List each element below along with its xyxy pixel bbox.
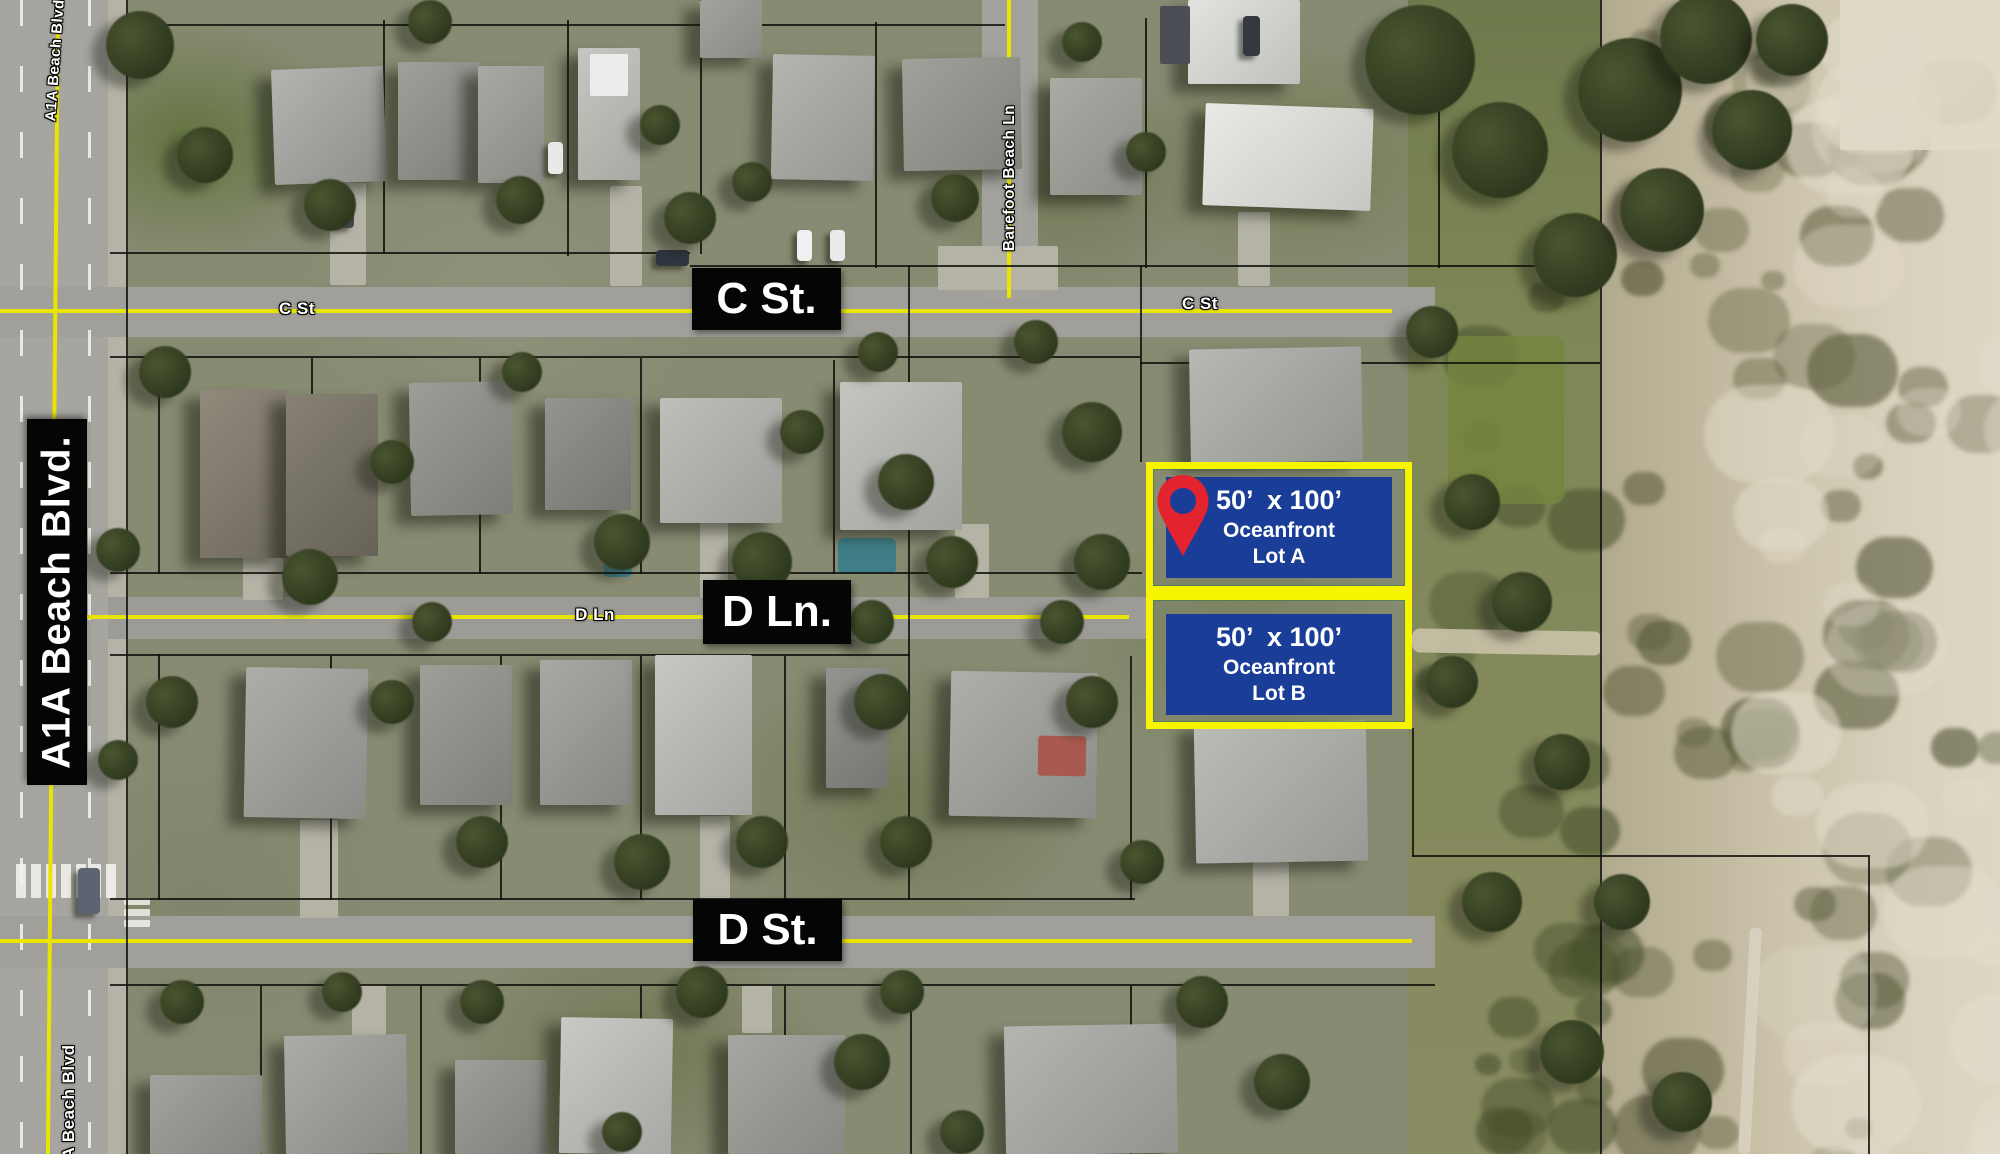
tree: [1534, 734, 1590, 790]
lot-b-name: Lot B: [1166, 682, 1392, 706]
scrub-patch: [1708, 288, 1789, 353]
tree: [1756, 4, 1828, 76]
tree: [931, 174, 979, 222]
tree: [602, 1112, 642, 1152]
parcel-line: [110, 356, 1140, 358]
sand-corner: [1840, 0, 2000, 150]
tree: [282, 549, 338, 605]
tree: [177, 127, 233, 183]
parcel-line: [567, 20, 569, 256]
parcel-line: [110, 252, 690, 254]
driveway: [300, 820, 338, 918]
house-roof: [655, 655, 752, 815]
tree: [1074, 534, 1130, 590]
sand-patch: [1826, 173, 1884, 216]
tree: [676, 966, 728, 1018]
tree: [1492, 572, 1552, 632]
scrub-patch: [1487, 1110, 1548, 1154]
house-roof: [545, 398, 631, 510]
parcel-line: [110, 984, 1435, 986]
house-roof: [271, 66, 387, 185]
house-roof: [540, 660, 632, 805]
tree: [370, 680, 414, 724]
parcel-line: [1412, 728, 1414, 857]
tree: [1594, 874, 1650, 930]
tree: [1066, 676, 1118, 728]
tree: [1426, 656, 1478, 708]
tree: [1014, 320, 1058, 364]
tree: [640, 105, 680, 145]
crosswalk-bar: [16, 864, 26, 898]
lane-dashes: [88, 0, 91, 1154]
lot-b-size: 50’ x 100’: [1166, 622, 1392, 653]
house-roof: [286, 394, 378, 556]
road-label-c-st-right: C St: [1155, 294, 1245, 314]
scrub-patch: [1603, 666, 1665, 715]
car: [656, 250, 689, 266]
sand-patch: [1793, 225, 1905, 309]
tree: [1540, 1020, 1604, 1084]
sand-patch: [1704, 385, 1835, 483]
car: [797, 230, 812, 261]
tree: [106, 11, 174, 79]
pool: [838, 538, 896, 574]
tree: [1533, 213, 1617, 297]
tree: [408, 0, 452, 44]
sand-path: [1412, 628, 1602, 655]
tree: [664, 192, 716, 244]
car: [1243, 16, 1260, 56]
car: [78, 868, 100, 914]
road-label-c-st-left: C St: [252, 299, 342, 319]
house-roof: [455, 1060, 547, 1154]
tree: [1176, 976, 1228, 1028]
tree: [1712, 90, 1792, 170]
scrub-patch: [1548, 1099, 1617, 1154]
tree: [1620, 168, 1704, 252]
scrub-patch: [1488, 997, 1539, 1038]
sand-patch: [1825, 604, 1947, 695]
tree: [780, 410, 824, 454]
tree: [880, 970, 924, 1014]
roof-section: [1160, 6, 1190, 64]
road-label-d-ln: D Ln: [550, 605, 640, 625]
driveway: [1253, 862, 1289, 916]
scrub-patch: [1693, 940, 1732, 971]
house-roof: [1202, 103, 1373, 211]
tree: [1126, 132, 1166, 172]
sand-patch: [1731, 692, 1841, 774]
house-roof: [700, 0, 762, 58]
scrub-patch: [1475, 1054, 1501, 1075]
scrub-patch: [1623, 472, 1665, 505]
parcel-line: [1868, 857, 1870, 1154]
tree: [732, 162, 772, 202]
house-roof: [1194, 721, 1368, 864]
scrub-patch: [1621, 261, 1665, 296]
road-a1a-shoulder: [108, 0, 128, 1154]
tree: [878, 454, 934, 510]
parcel-line: [110, 572, 1142, 574]
parcel-line: [1140, 266, 1142, 462]
lot-a-sign[interactable]: 50’ x 100’ Oceanfront Lot A: [1166, 477, 1392, 578]
tree: [1406, 306, 1458, 358]
road-label-a1a-bottom: A Beach Blvd: [59, 1041, 79, 1154]
tree: [1254, 1054, 1310, 1110]
house-roof: [398, 62, 480, 180]
scrub-patch: [1978, 732, 2000, 764]
parcel-line: [833, 360, 835, 574]
scrub-patch: [1627, 614, 1671, 650]
sand-patch: [1759, 528, 1806, 563]
tree: [858, 332, 898, 372]
tree: [146, 676, 198, 728]
house-roof: [409, 381, 513, 516]
street-label-d-st: D St.: [693, 899, 842, 961]
tree: [940, 1110, 984, 1154]
driveway: [742, 985, 772, 1033]
street-label-d-ln: D Ln.: [703, 580, 851, 644]
scrub-patch: [1674, 727, 1738, 778]
lot-a-overlay[interactable]: 50’ x 100’ Oceanfront Lot A: [1146, 462, 1412, 593]
tree: [96, 528, 140, 572]
tree: [594, 514, 650, 570]
parcel-line: [1412, 855, 1870, 857]
house-roof: [284, 1034, 408, 1154]
parcel-line: [420, 986, 422, 1154]
scrub-patch: [1690, 253, 1720, 277]
tree: [880, 816, 932, 868]
lot-b-sign[interactable]: 50’ x 100’ Oceanfront Lot B: [1166, 614, 1392, 715]
tree: [850, 600, 894, 644]
parcel-line: [1600, 0, 1602, 1154]
tree: [456, 816, 508, 868]
house-roof: [200, 390, 288, 558]
location-pin-icon[interactable]: [1154, 473, 1212, 559]
tree: [412, 602, 452, 642]
street-label-a1a-beach-blvd: A1A Beach Blvd.: [27, 419, 87, 785]
house-roof: [1004, 1024, 1178, 1154]
house-roof: [478, 66, 544, 183]
house-roof: [771, 54, 875, 181]
sand-patch: [1897, 388, 1961, 436]
lot-b-type: Oceanfront: [1166, 656, 1392, 680]
tree: [460, 980, 504, 1024]
house-roof: [150, 1075, 262, 1154]
scrub-patch: [1499, 785, 1564, 837]
map-decoration: [0, 0, 2000, 1154]
car: [548, 142, 563, 174]
driveway: [1238, 212, 1270, 286]
crosswalk-bar: [31, 864, 41, 898]
house-roof: [420, 665, 512, 805]
tree: [322, 972, 362, 1012]
tree: [1462, 872, 1522, 932]
house-deck: [1038, 736, 1087, 777]
scrub-patch: [1716, 622, 1803, 692]
parcel-line: [110, 898, 1135, 900]
parcel-line: [875, 22, 877, 268]
tree: [926, 536, 978, 588]
tree: [736, 816, 788, 868]
sand-patch: [1791, 1055, 1920, 1152]
tree: [1444, 474, 1500, 530]
driveway: [610, 186, 642, 286]
scrub-patch: [1560, 807, 1620, 855]
tree: [370, 440, 414, 484]
driveway: [938, 246, 1058, 290]
tree: [854, 674, 910, 730]
rooftop-deck: [590, 54, 628, 96]
tree: [1040, 600, 1084, 644]
lane-dashes: [20, 0, 23, 1154]
tree: [1452, 102, 1548, 198]
tree: [98, 740, 138, 780]
parcel-line: [784, 656, 786, 900]
crosswalk-bar: [106, 864, 116, 898]
tree: [834, 1034, 890, 1090]
tree: [1365, 5, 1475, 115]
house-roof: [728, 1035, 845, 1154]
house-roof: [1189, 347, 1363, 464]
scrub-patch: [1761, 271, 1786, 291]
tree: [1652, 1072, 1712, 1132]
scrub-patch: [1931, 728, 1980, 767]
tree: [614, 834, 670, 890]
tree: [139, 346, 191, 398]
parcel-line: [126, 0, 128, 1154]
house-roof: [244, 667, 369, 819]
sand-patch: [1883, 866, 2000, 958]
tree: [304, 179, 356, 231]
scrub-patch: [1509, 1048, 1541, 1073]
street-label-c-st: C St.: [692, 268, 841, 330]
tree: [1120, 840, 1164, 884]
house-roof: [1050, 78, 1142, 195]
house-roof: [660, 398, 782, 523]
parcel-line: [110, 654, 910, 656]
lot-b-overlay[interactable]: 50’ x 100’ Oceanfront Lot B: [1146, 593, 1412, 729]
scrub-patch: [1534, 923, 1602, 977]
tree: [502, 352, 542, 392]
tree: [1062, 22, 1102, 62]
aerial-map: C St C St D Ln A1A Beach Blvd A Beach Bl…: [0, 0, 2000, 1154]
car: [830, 230, 845, 261]
road-label-barefoot-beach-ln: Barefoot Beach Ln: [1001, 103, 1019, 253]
driveway: [243, 556, 283, 600]
sand-patch: [1942, 779, 1991, 816]
sand-patch: [1771, 776, 1823, 815]
tree: [160, 980, 204, 1024]
tree: [1062, 402, 1122, 462]
crosswalk-bar: [61, 864, 71, 898]
tree: [496, 176, 544, 224]
scrub-patch: [1807, 334, 1898, 407]
